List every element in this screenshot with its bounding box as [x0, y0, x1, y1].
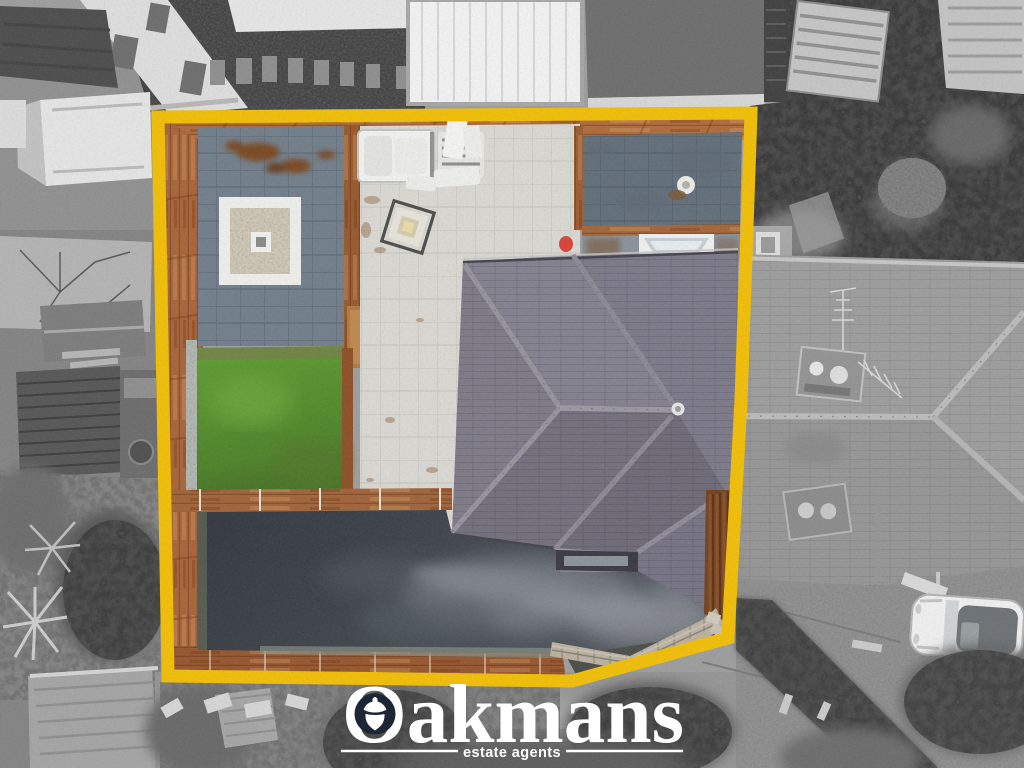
svg-text:estate agents: estate agents — [463, 745, 561, 761]
